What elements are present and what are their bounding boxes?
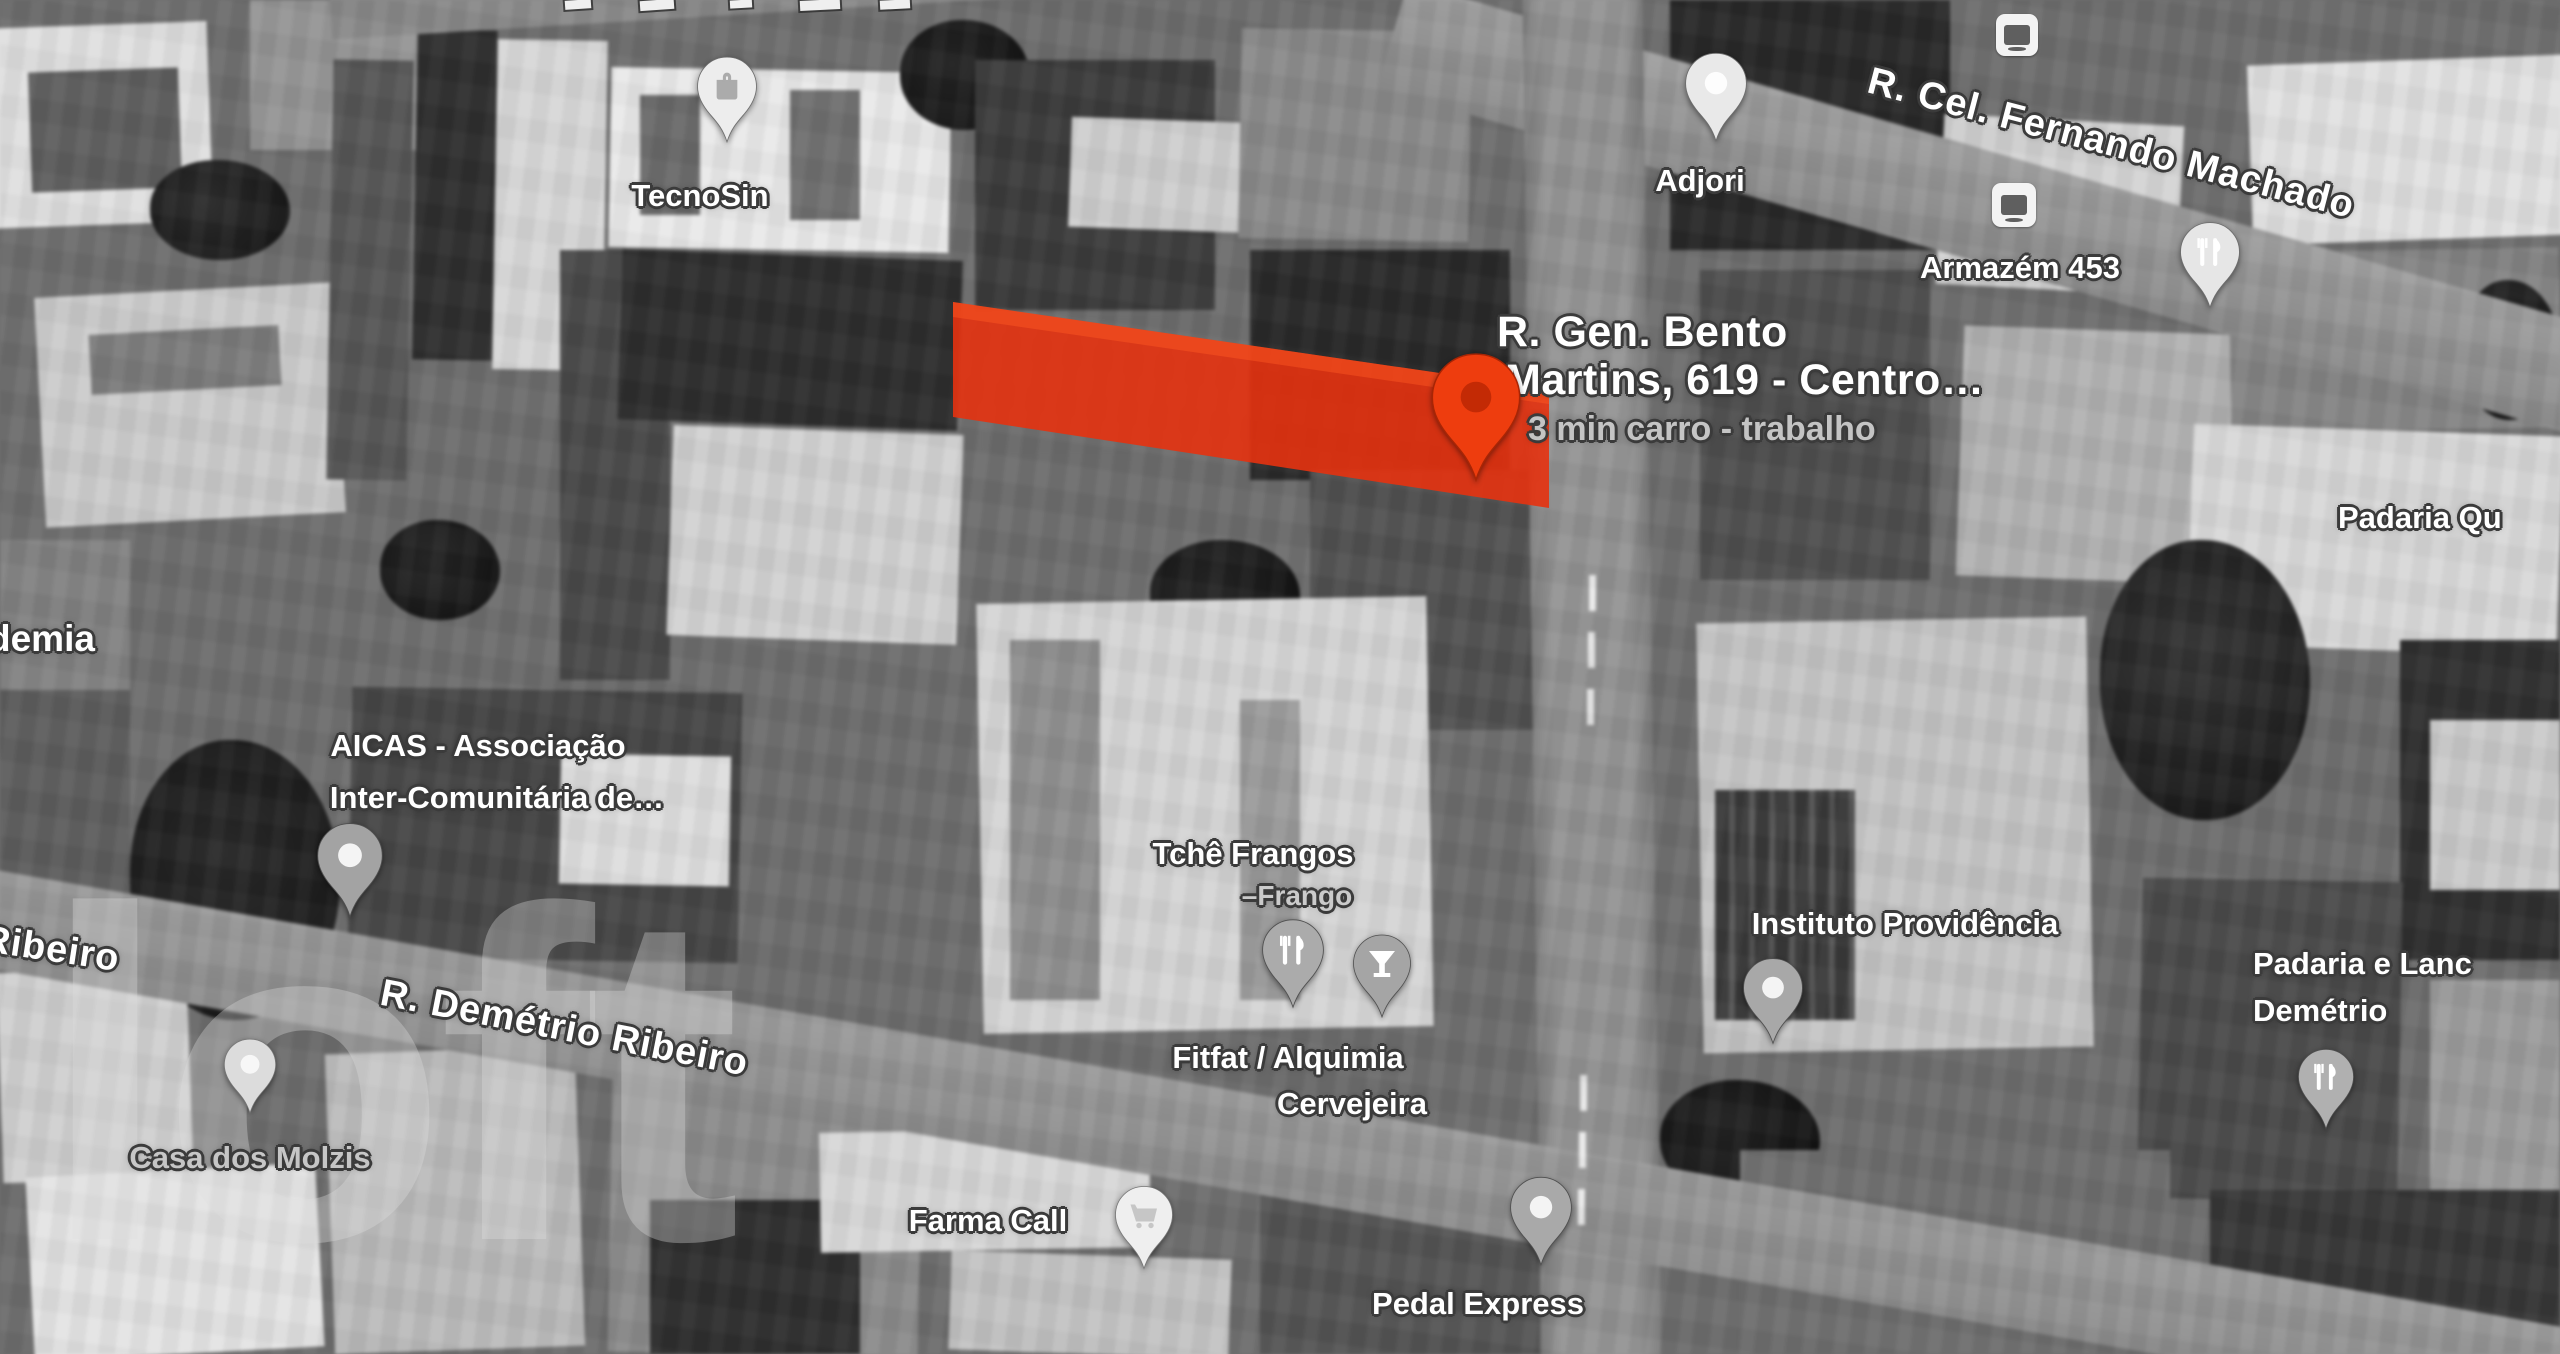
- poi-label-instituto-providencia[interactable]: Instituto Providência: [1752, 906, 2059, 942]
- bus-glyph: [2001, 195, 2027, 215]
- poi-label-armazem-453[interactable]: Armazém 453: [1920, 250, 2120, 286]
- poi-label-aicas-line1[interactable]: AICAS - Associação: [330, 728, 625, 764]
- poi-label-tche-frangos[interactable]: Tchê Frangos: [1153, 836, 1354, 872]
- poi-square-icon[interactable]: [1992, 183, 2036, 227]
- satellite-map[interactable]: loft R. Cel. Fernando Machado R. Demétri…: [0, 0, 2560, 1354]
- poi-label-aicas-line2[interactable]: Inter-Comunitária de…: [330, 780, 664, 816]
- poi-category-frango: –Frango: [1242, 880, 1352, 912]
- poi-label-fitfat-line1[interactable]: Fitfat / Alquimia: [1172, 1040, 1403, 1076]
- poi-label-casa-dos-molzis[interactable]: Casa dos Molzis: [129, 1140, 370, 1176]
- red-property-pin[interactable]: [1430, 348, 1522, 486]
- place-pin-adjori[interactable]: [1684, 50, 1748, 144]
- poi-label-farma-call[interactable]: Farma Call: [909, 1203, 1068, 1239]
- map-overlay-layer: R. Cel. Fernando Machado R. Demétrio Rib…: [0, 0, 2560, 1354]
- street-label-fragment: [730, 0, 752, 9]
- place-pin-pedal-express[interactable]: [1509, 1172, 1573, 1270]
- poi-label-padaria-demetrio-line2[interactable]: Demétrio: [2253, 993, 2387, 1029]
- address-label-line2[interactable]: Martins, 619 - Centro…: [1505, 356, 1984, 405]
- place-pin-casa-dos-molzis[interactable]: [223, 1030, 277, 1122]
- transit-station-icon[interactable]: [1996, 14, 2038, 56]
- address-label-line1[interactable]: R. Gen. Bento: [1497, 308, 1788, 357]
- street-label-ribeiro-fragment[interactable]: Ribeiro: [0, 918, 122, 981]
- shopping-pin-farma-call[interactable]: [1114, 1180, 1174, 1275]
- shopping-pin-tecnosin[interactable]: [696, 56, 758, 143]
- restaurant-pin-tche-frangos[interactable]: [1261, 916, 1325, 1011]
- poi-label-padaria-demetrio-line1[interactable]: Padaria e Lanc: [2253, 946, 2472, 982]
- poi-label-tecnosin[interactable]: TecnoSin: [631, 178, 768, 214]
- poi-label-adjori[interactable]: Adjori: [1655, 163, 1745, 199]
- poi-label-padaria-qu[interactable]: Padaria Qu: [2338, 500, 2502, 536]
- place-pin-aicas[interactable]: [316, 820, 384, 920]
- commute-time-label[interactable]: 3 min carro - trabalho: [1528, 410, 1876, 449]
- restaurant-pin-padaria-demetrio[interactable]: [2297, 1046, 2355, 1132]
- street-label-fragment: [565, 0, 592, 10]
- poi-label-academia-fragment[interactable]: demia: [0, 618, 95, 660]
- place-pin-instituto[interactable]: [1742, 955, 1804, 1047]
- bus-glyph: [2004, 25, 2029, 44]
- bar-pin-tche-frangos[interactable]: [1352, 931, 1412, 1021]
- poi-label-pedal-express[interactable]: Pedal Express: [1372, 1286, 1584, 1322]
- street-label-fernando-machado[interactable]: R. Cel. Fernando Machado: [1863, 60, 2359, 228]
- poi-label-fitfat-line2[interactable]: Cervejeira: [1277, 1086, 1427, 1122]
- street-label-fragment: [880, 0, 910, 10]
- street-label-demetrio-ribeiro[interactable]: R. Demétrio Ribeiro: [377, 972, 752, 1086]
- street-label-fragment: [640, 0, 675, 11]
- restaurant-pin-armazem[interactable]: [2179, 220, 2241, 310]
- street-label-fragment: [800, 0, 840, 11]
